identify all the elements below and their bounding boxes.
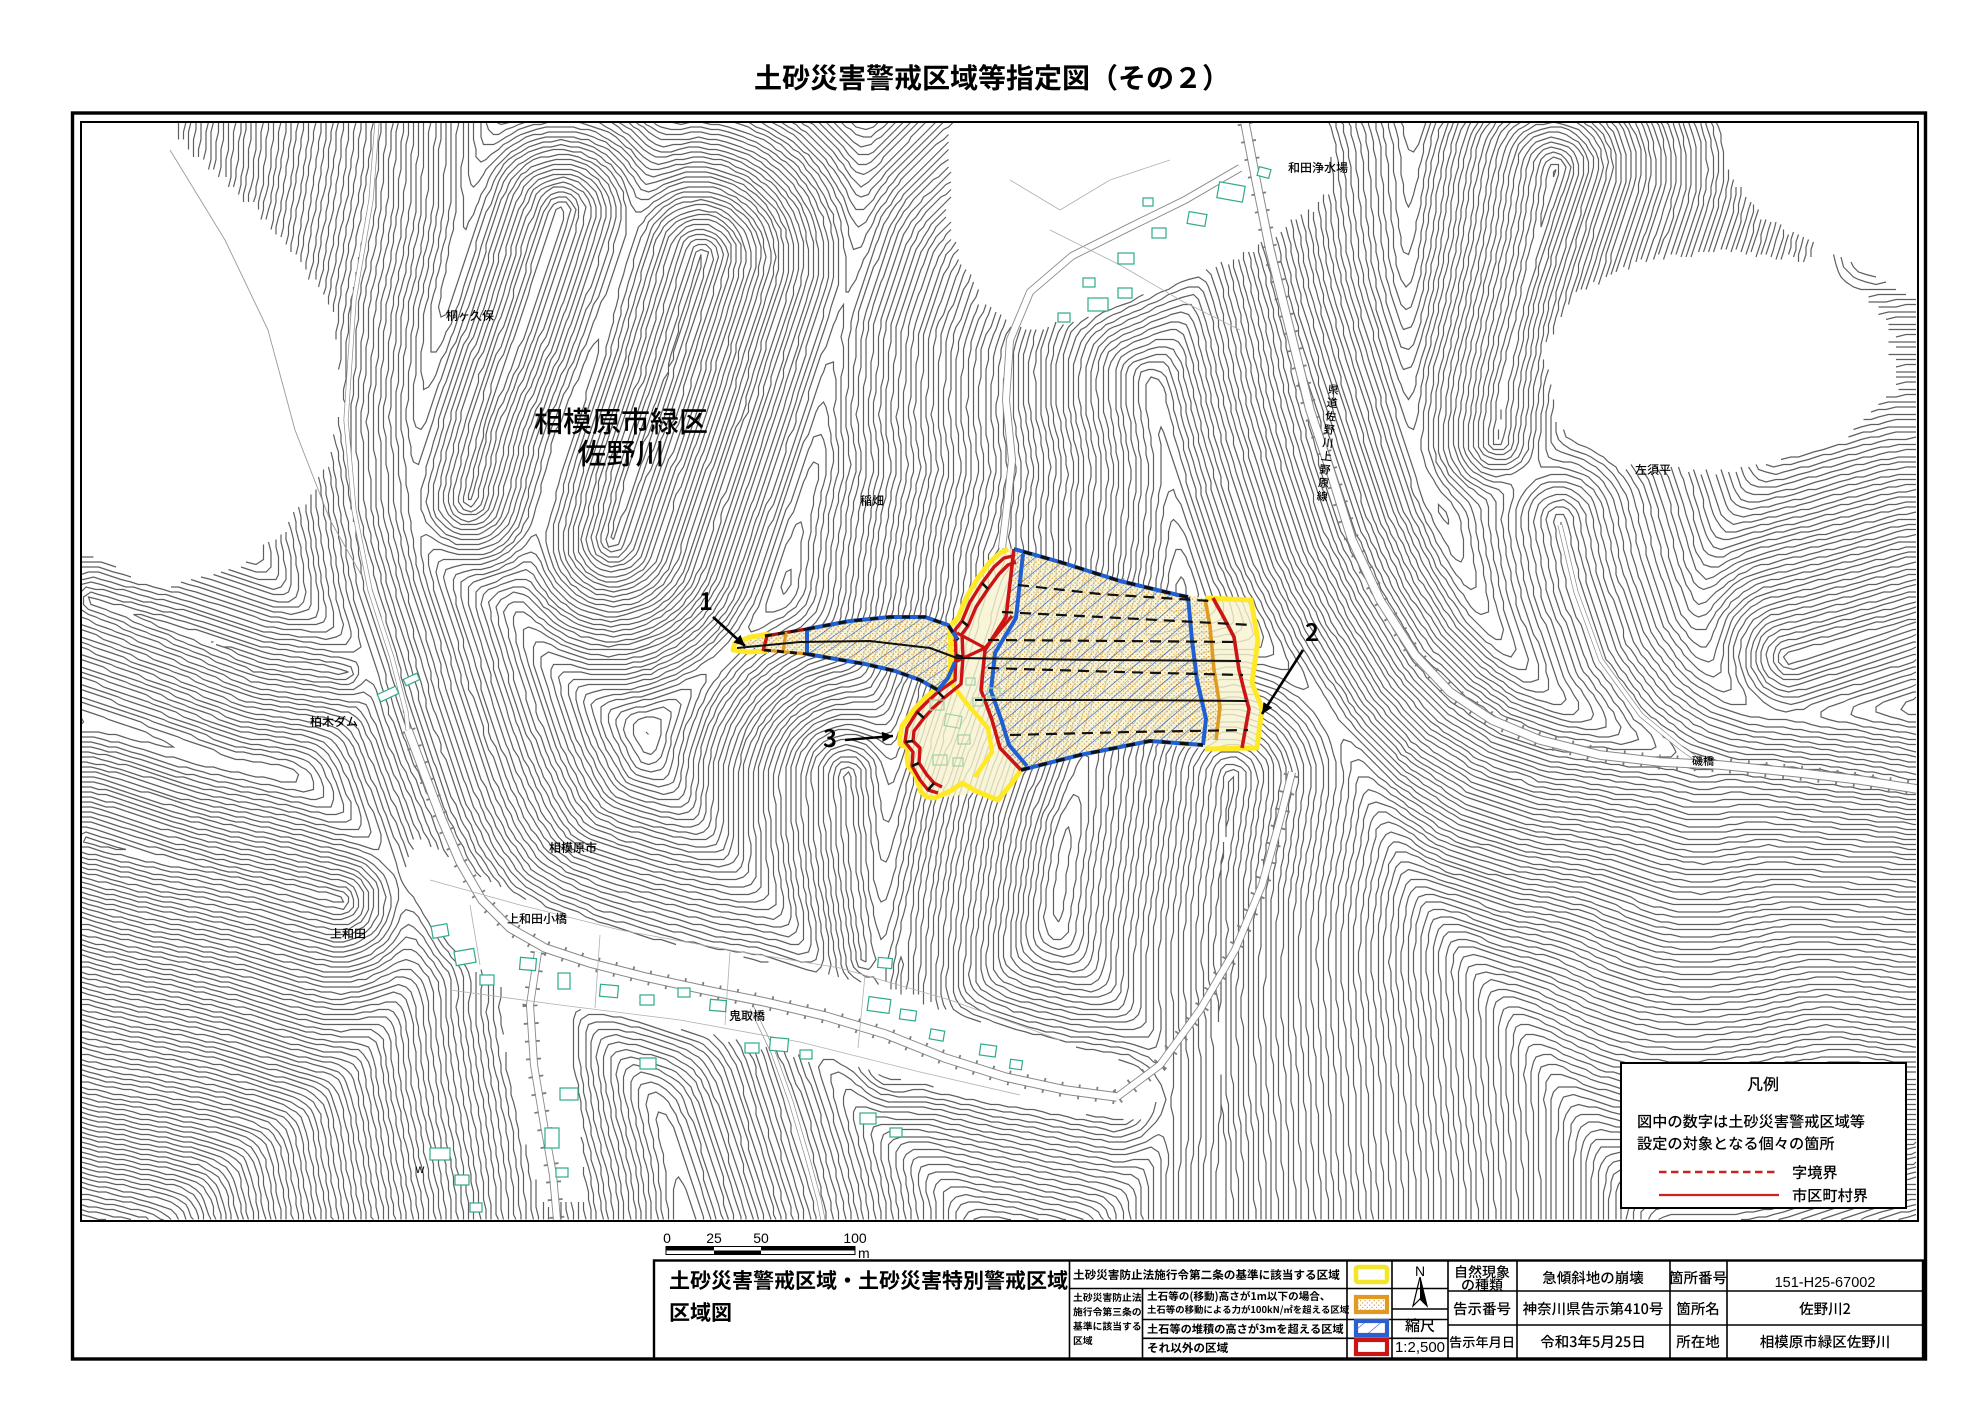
- svg-text:151-H25-67002: 151-H25-67002: [1775, 1275, 1876, 1291]
- svg-text:0: 0: [663, 1230, 671, 1246]
- svg-text:1:2,500: 1:2,500: [1395, 1339, 1445, 1356]
- svg-text:m: m: [858, 1245, 870, 1261]
- svg-text:N: N: [1415, 1263, 1425, 1279]
- svg-text:50: 50: [753, 1230, 769, 1246]
- svg-text:25: 25: [706, 1230, 722, 1246]
- svg-text:100: 100: [843, 1230, 867, 1246]
- svg-text:w: w: [415, 1162, 425, 1176]
